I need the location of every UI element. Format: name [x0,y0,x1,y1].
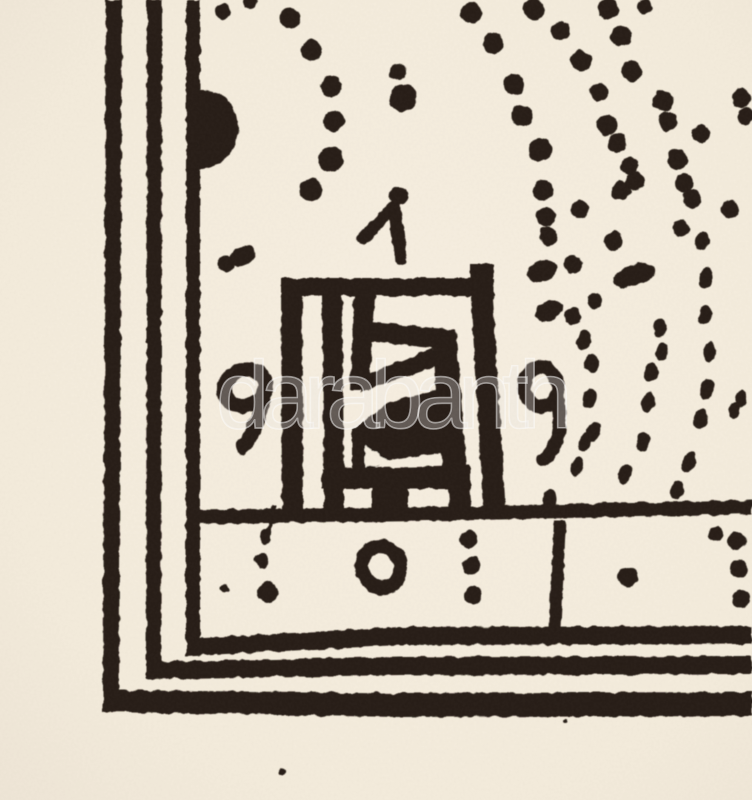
svg-text:darabanth: darabanth [216,342,567,449]
